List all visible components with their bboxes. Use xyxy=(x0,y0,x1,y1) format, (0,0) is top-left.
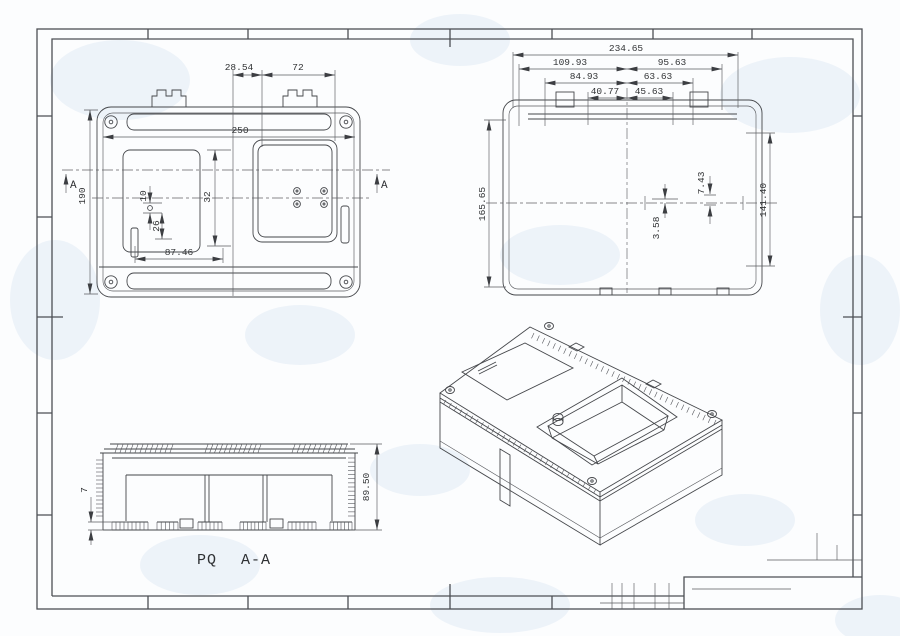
dim-label-165-65: 165.65 xyxy=(477,187,488,222)
dim-label-10: 10 xyxy=(138,190,149,202)
dim-label-84-93: 84.93 xyxy=(570,71,599,82)
dim-label-45-63: 45.63 xyxy=(635,86,664,97)
isometric-view xyxy=(440,323,722,546)
dim-label-26: 26 xyxy=(151,220,162,232)
dim-label-32: 32 xyxy=(202,191,213,203)
section-view-label-pq: PQ xyxy=(197,552,217,569)
dim-label-63-63: 63.63 xyxy=(644,71,673,82)
dim-label-72: 72 xyxy=(292,62,304,73)
dim-label-190: 190 xyxy=(77,187,88,204)
dim-label-250: 250 xyxy=(231,125,248,136)
dim-label-3-58: 3.58 xyxy=(651,216,662,239)
section-view-label-aa: A-A xyxy=(241,552,271,569)
section-hatching xyxy=(96,445,355,531)
dim-label-7: 7 xyxy=(79,487,90,493)
dim-label-87-46: 87.46 xyxy=(165,247,194,258)
dim-label-89-50: 89.50 xyxy=(361,472,372,501)
dim-label-141-40: 141.40 xyxy=(758,183,769,218)
iso-knurl-texture xyxy=(444,333,717,493)
dim-label-28-54: 28.54 xyxy=(225,62,254,73)
dim-label-95-63: 95.63 xyxy=(658,57,687,68)
dim-label-109-93: 109.93 xyxy=(553,57,588,68)
dim-label-234-65: 234.65 xyxy=(609,43,644,54)
section-marker-a-right: A xyxy=(381,180,388,192)
dim-label-40-77: 40.77 xyxy=(591,86,620,97)
section-marker-a-left: A xyxy=(70,180,77,192)
cad-drawing-canvas: 28.54 72 250 190 32 10 26 87.46 A A xyxy=(0,0,900,636)
dim-label-7-43: 7.43 xyxy=(696,171,707,194)
